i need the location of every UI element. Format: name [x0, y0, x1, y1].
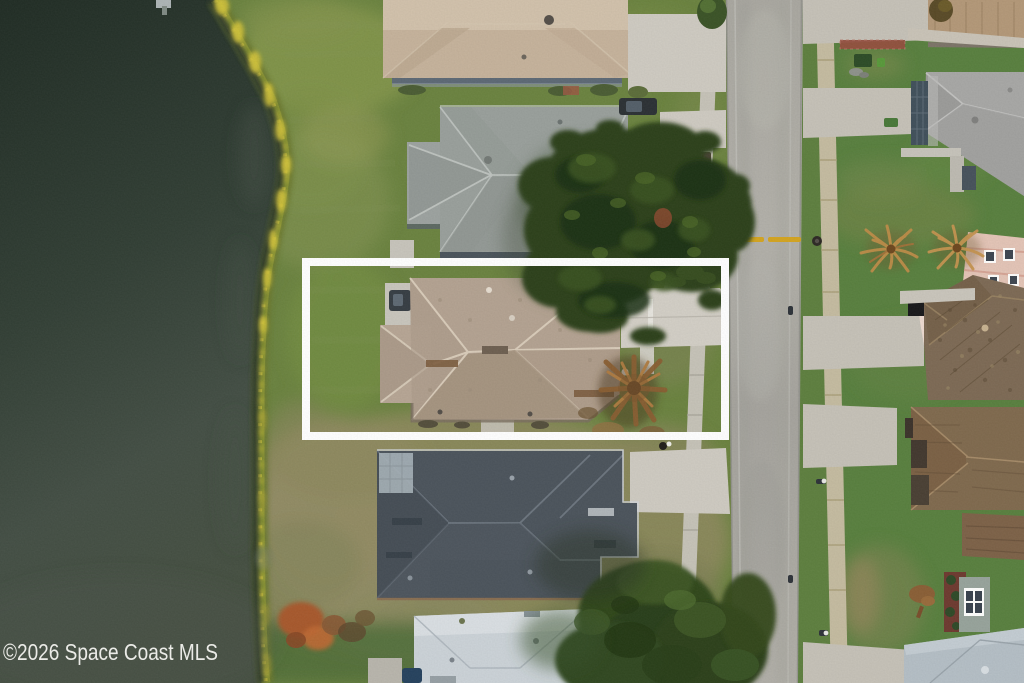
svg-text:©2026 Space Coast MLS: ©2026 Space Coast MLS: [3, 639, 218, 665]
